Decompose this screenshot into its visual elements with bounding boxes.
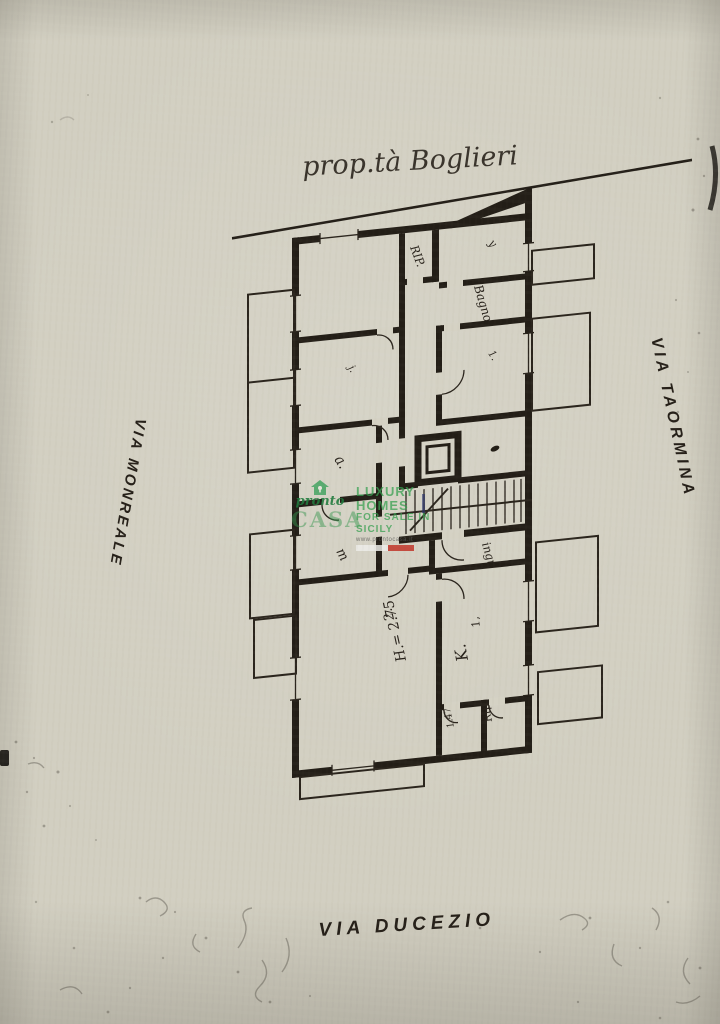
pencil-squiggles: [28, 117, 700, 1003]
label-bathroom: Bagno: [471, 282, 495, 324]
label-room-m: m: [332, 546, 351, 564]
edge-mark-topright: [710, 146, 716, 210]
balconies: [248, 243, 602, 804]
label-kitchen-number: 1,: [468, 615, 483, 629]
label-height-note: H.= 2.75: [381, 598, 410, 665]
elevator: [418, 435, 458, 483]
windows: [290, 211, 534, 781]
label-mark-midright: 1.: [485, 349, 499, 363]
label-kitchen: K.: [450, 642, 472, 665]
scanned-floorplan-page: prop.tà Boglieri VIA TAORMINA VIA MONREA…: [0, 0, 720, 1024]
floorplan-drawing: RIP. y Bagno 1. j. a. m ingr. 2. H.= 2.7…: [0, 0, 720, 1024]
label-mark-leftmid: j.: [344, 362, 358, 375]
label-closet-top: RIP.: [407, 242, 428, 269]
edge-mark-left: [0, 750, 9, 766]
label-room-a: a.: [331, 452, 351, 472]
label-mark-y: y: [485, 236, 500, 251]
floor-plan: RIP. y Bagno 1. j. a. m ingr. 2. H.= 2.7…: [232, 160, 692, 806]
